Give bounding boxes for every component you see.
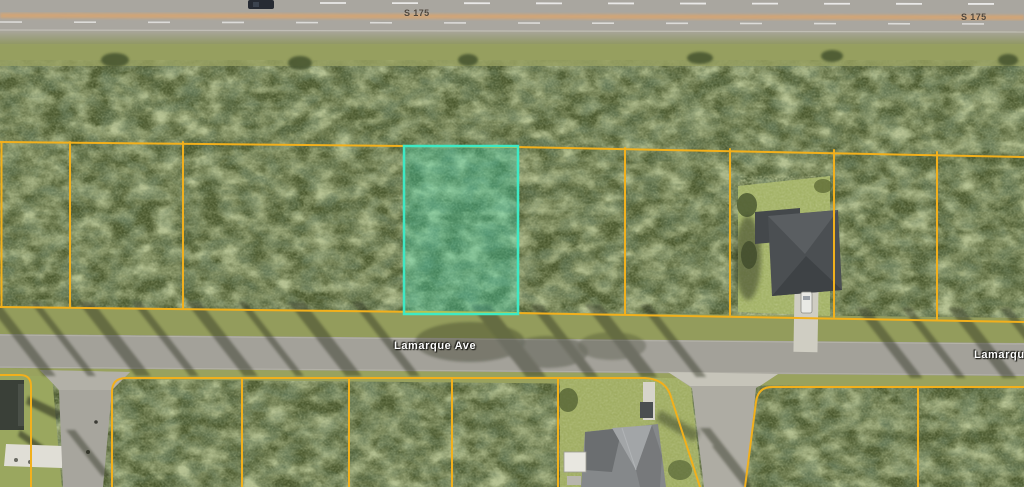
left-driveway bbox=[4, 444, 64, 468]
aerial-parcel-map[interactable]: S 175 S 175 Lamarque Ave Lamarque bbox=[0, 0, 1024, 487]
white-shed bbox=[564, 452, 586, 472]
highway-s175 bbox=[0, 0, 1024, 48]
entry-structure bbox=[640, 402, 653, 418]
vehicle-on-highway bbox=[248, 0, 274, 9]
car-in-driveway bbox=[801, 292, 812, 313]
aerial-imagery bbox=[0, 0, 1024, 487]
highlighted-parcel[interactable] bbox=[404, 146, 518, 314]
